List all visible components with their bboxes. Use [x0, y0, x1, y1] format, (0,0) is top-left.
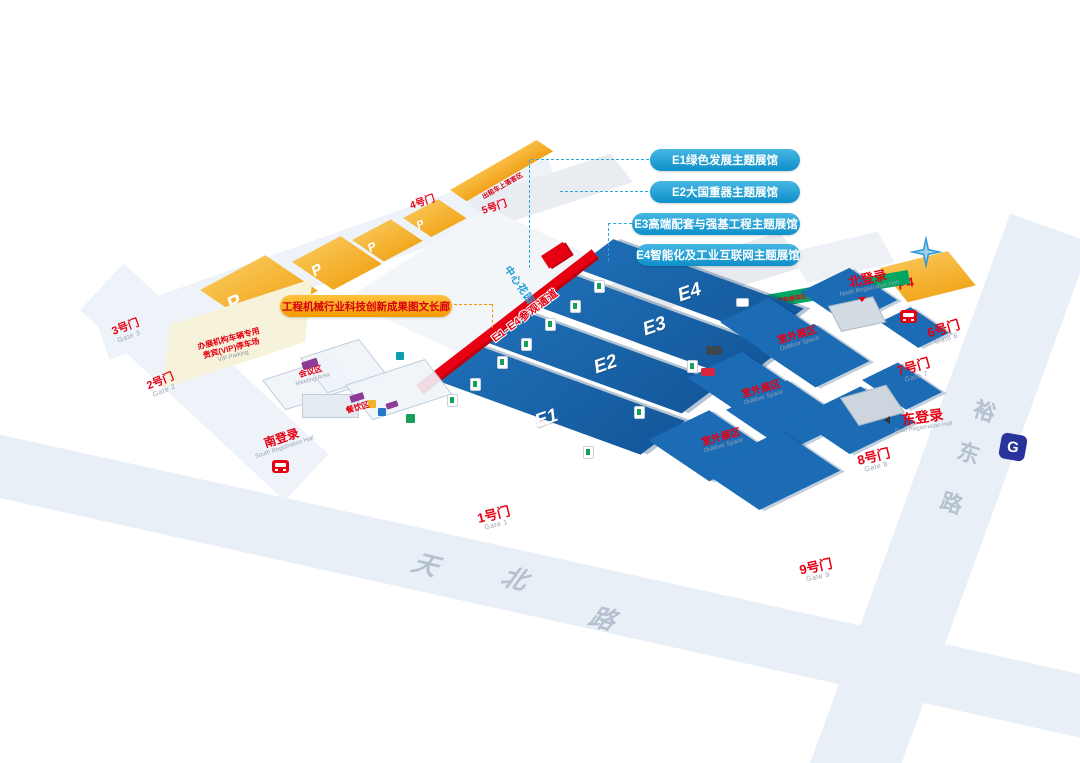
- callout-gallery-text: 工程机械行业科技创新成果图文长廊: [282, 299, 450, 314]
- north-arrow-icon: [858, 297, 866, 302]
- entrance-marker: [521, 338, 532, 351]
- bus-icon: [900, 310, 917, 323]
- leader-line: [529, 160, 530, 268]
- gate-7: 7号门 Gate 7: [896, 356, 934, 385]
- truck-icon: [701, 368, 715, 376]
- callout-hall-e3-text: E3高端配套与强基工程主题展馆: [634, 216, 798, 232]
- callout-hall-e1[interactable]: E1绿色发展主题展馆: [650, 149, 800, 171]
- callout-gallery[interactable]: 工程机械行业科技创新成果图文长廊: [280, 295, 452, 317]
- entrance-marker: [545, 318, 556, 331]
- entrance-marker: [634, 406, 645, 419]
- metro-letter: G: [1006, 438, 1020, 457]
- callout-hall-e4-text: E4智能化及工业互联网主题展馆: [636, 247, 800, 263]
- callout-hall-e2[interactable]: E2大国重器主题展馆: [650, 181, 800, 203]
- entrance-marker: [583, 446, 594, 459]
- callout-hall-e1-text: E1绿色发展主题展馆: [672, 152, 778, 168]
- entrance-marker: [497, 356, 508, 369]
- entrance-marker: [447, 394, 458, 407]
- callout-hall-e3[interactable]: E3高端配套与强基工程主题展馆: [632, 213, 800, 235]
- zone-icon: [406, 414, 415, 423]
- entrance-marker: [594, 280, 605, 293]
- metro-station-icon: G: [998, 432, 1028, 462]
- leader-line: [531, 159, 649, 160]
- zone-icon: [378, 408, 386, 416]
- entrance-marker: [470, 378, 481, 391]
- venue-map: 天 北 路 裕 东 路 P P P P 办展机构车辆专用 贵宾(VIP)停车场 …: [0, 0, 1080, 763]
- east-arrow-icon: [884, 416, 890, 424]
- leader-line: [608, 223, 632, 224]
- compass-icon: [908, 234, 944, 270]
- leader-line-orange: [492, 304, 493, 328]
- entrance-marker: [570, 300, 581, 313]
- gate-8: 8号门 Gate 8: [856, 446, 893, 474]
- callout-hall-e2-text: E2大国重器主题展馆: [672, 184, 778, 200]
- leader-line-orange: [454, 304, 492, 305]
- gate-1: 1号门 Gate 1: [476, 504, 513, 532]
- zone-icon: [396, 352, 404, 360]
- truck-icon: [736, 298, 749, 307]
- excavator-icon: [706, 346, 722, 355]
- callout-hall-e4[interactable]: E4智能化及工业互联网主题展馆: [636, 244, 800, 266]
- bus-icon: [272, 460, 289, 473]
- leader-line: [560, 191, 648, 192]
- leader-line: [608, 223, 609, 261]
- entrance-marker: [687, 360, 698, 373]
- gate-9: 9号门 Gate 9: [798, 557, 835, 584]
